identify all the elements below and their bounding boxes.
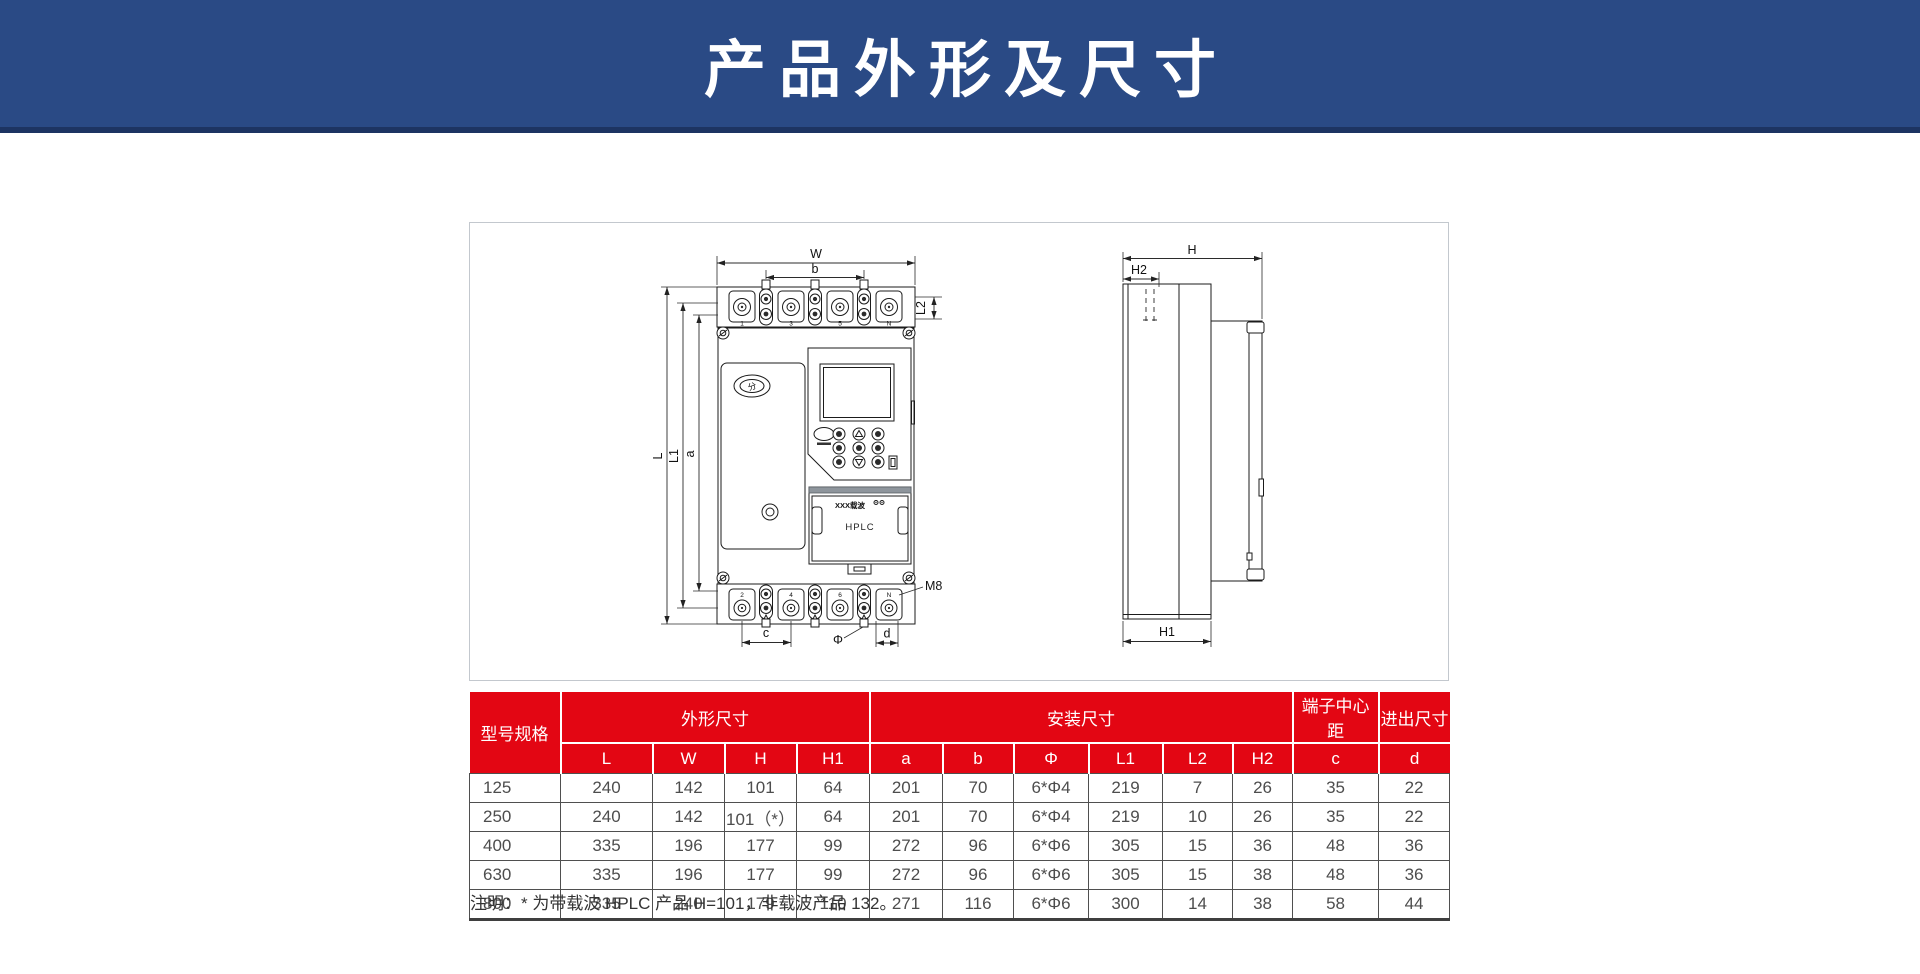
col-header: b bbox=[943, 743, 1014, 774]
value-cell: 70 bbox=[943, 774, 1014, 803]
dim-label-h: H bbox=[1187, 243, 1196, 257]
value-cell: 14 bbox=[1163, 890, 1233, 920]
col-header: L2 bbox=[1163, 743, 1233, 774]
dim-label-h2: H2 bbox=[1131, 263, 1147, 277]
header-model: 型号规格 bbox=[470, 692, 561, 774]
page-title: 产品外形及尺寸 bbox=[0, 0, 1920, 127]
dim-label-a: a bbox=[683, 450, 697, 457]
page-header: 产品外形及尺寸 bbox=[0, 0, 1920, 133]
value-cell: 35 bbox=[1293, 774, 1379, 803]
value-cell: 201 bbox=[870, 774, 943, 803]
col-header: L bbox=[561, 743, 653, 774]
terminal-label: 5 bbox=[838, 321, 842, 328]
keypad-buttons bbox=[833, 428, 884, 468]
dim-label-b: b bbox=[812, 262, 819, 276]
value-cell: 142 bbox=[653, 803, 725, 832]
value-cell: 26 bbox=[1233, 803, 1293, 832]
value-cell: 58 bbox=[1293, 890, 1379, 920]
header-outline-dims: 外形尺寸 bbox=[561, 692, 870, 743]
value-cell: 240 bbox=[561, 803, 653, 832]
value-cell: 70 bbox=[943, 803, 1014, 832]
value-cell: 6*Φ6 bbox=[1014, 861, 1089, 890]
dim-label-phi: Φ bbox=[833, 633, 843, 647]
header-terminal-pitch: 端子中心距 bbox=[1293, 692, 1379, 743]
value-cell: 38 bbox=[1233, 861, 1293, 890]
dimension-drawing: 1 3 5 N 分 bbox=[470, 223, 1448, 680]
dim-d: d bbox=[876, 621, 898, 647]
model-cell: 250 bbox=[470, 803, 561, 832]
col-header: Φ bbox=[1014, 743, 1089, 774]
display-panel bbox=[808, 348, 911, 480]
dim-label-d: d bbox=[884, 627, 891, 641]
value-cell: 305 bbox=[1089, 832, 1163, 861]
hplc-module: XXX载波 HPLC bbox=[809, 487, 911, 574]
dim-b: b bbox=[766, 262, 864, 279]
value-cell: 240 bbox=[561, 774, 653, 803]
spec-table: 型号规格 外形尺寸 安装尺寸 端子中心距 进出尺寸 L W H H1 a b Φ… bbox=[469, 692, 1450, 921]
model-cell: 400 bbox=[470, 832, 561, 861]
keyhole bbox=[762, 504, 778, 520]
col-header: H1 bbox=[797, 743, 870, 774]
value-cell: 196 bbox=[653, 861, 725, 890]
front-cover-profile bbox=[1249, 321, 1262, 581]
dim-l2: L2 bbox=[914, 297, 942, 319]
value-cell: 305 bbox=[1089, 861, 1163, 890]
module-brand-label: XXX载波 bbox=[835, 500, 866, 510]
value-cell: 36 bbox=[1379, 861, 1450, 890]
value-cell: 38 bbox=[1233, 890, 1293, 920]
value-cell: 300 bbox=[1089, 890, 1163, 920]
value-cell: 335 bbox=[561, 861, 653, 890]
dim-label-c: c bbox=[763, 626, 769, 640]
power-off-display-button bbox=[814, 428, 834, 441]
col-header: L1 bbox=[1089, 743, 1163, 774]
model-cell: 630 bbox=[470, 861, 561, 890]
table-row: 63033519617799272966*Φ630515384836 bbox=[470, 861, 1450, 890]
value-cell: 142 bbox=[653, 774, 725, 803]
dim-label-l2: L2 bbox=[914, 301, 928, 315]
value-cell: 22 bbox=[1379, 803, 1450, 832]
front-door-panel: 分 bbox=[721, 363, 805, 549]
value-cell: 44 bbox=[1379, 890, 1450, 920]
dim-label-w: W bbox=[810, 247, 822, 261]
value-cell: 48 bbox=[1293, 832, 1379, 861]
table-row: 250240142101（*）64201706*Φ421910263522 bbox=[470, 803, 1450, 832]
header-mounting-dims: 安装尺寸 bbox=[870, 692, 1293, 743]
table-note: 注明：* 为带载波 HPLC 产品 H=101，非载波产品 132。 bbox=[470, 889, 897, 914]
dim-label-l: L bbox=[651, 452, 665, 459]
value-cell: 116 bbox=[943, 890, 1014, 920]
value-cell: 6*Φ6 bbox=[1014, 890, 1089, 920]
terminal-label: 2 bbox=[740, 592, 744, 599]
terminal-label: 1 bbox=[740, 321, 744, 328]
value-cell: 6*Φ4 bbox=[1014, 803, 1089, 832]
value-cell: 96 bbox=[943, 861, 1014, 890]
dim-phi: Φ bbox=[833, 627, 863, 647]
value-cell: 64 bbox=[797, 774, 870, 803]
value-cell: 335 bbox=[561, 832, 653, 861]
value-cell: 177 bbox=[725, 861, 797, 890]
side-view: H H2 H1 bbox=[1123, 243, 1264, 647]
value-cell: 99 bbox=[797, 861, 870, 890]
col-header: c bbox=[1293, 743, 1379, 774]
terminal-label: 3 bbox=[789, 321, 793, 328]
terminal-label: N bbox=[887, 592, 892, 599]
value-cell: 219 bbox=[1089, 774, 1163, 803]
col-header: W bbox=[653, 743, 725, 774]
dim-label-m8: M8 bbox=[925, 579, 942, 593]
value-cell: 272 bbox=[870, 861, 943, 890]
module-name-label: HPLC bbox=[845, 522, 874, 533]
table-row: 40033519617799272966*Φ630515364836 bbox=[470, 832, 1450, 861]
dim-label-h1: H1 bbox=[1159, 625, 1175, 639]
value-cell: 6*Φ6 bbox=[1014, 832, 1089, 861]
value-cell: 48 bbox=[1293, 861, 1379, 890]
dim-a: a bbox=[683, 315, 718, 591]
col-header: a bbox=[870, 743, 943, 774]
terminal-label: N bbox=[887, 321, 892, 328]
table-row: 12524014210164201706*Φ42197263522 bbox=[470, 774, 1450, 803]
value-cell: 36 bbox=[1233, 832, 1293, 861]
value-cell: 7 bbox=[1163, 774, 1233, 803]
terminal-label: 6 bbox=[838, 592, 842, 599]
terminal-label: 4 bbox=[789, 592, 793, 599]
value-cell: 64 bbox=[797, 803, 870, 832]
value-cell: 22 bbox=[1379, 774, 1450, 803]
dim-h2: H2 bbox=[1123, 263, 1159, 287]
col-header: H bbox=[725, 743, 797, 774]
value-cell: 36 bbox=[1379, 832, 1450, 861]
value-cell: 272 bbox=[870, 832, 943, 861]
value-cell: 201 bbox=[870, 803, 943, 832]
value-cell: 10 bbox=[1163, 803, 1233, 832]
value-cell: 15 bbox=[1163, 861, 1233, 890]
drawing-frame: 1 3 5 N 分 bbox=[469, 222, 1449, 681]
value-cell: 219 bbox=[1089, 803, 1163, 832]
model-cell: 125 bbox=[470, 774, 561, 803]
value-cell: 101（*） bbox=[725, 803, 797, 832]
lcd-display bbox=[820, 364, 894, 421]
front-view: 1 3 5 N 分 bbox=[651, 247, 942, 647]
value-cell: 96 bbox=[943, 832, 1014, 861]
dim-label-l1: L1 bbox=[667, 449, 681, 463]
header-inout: 进出尺寸 bbox=[1379, 692, 1450, 743]
col-header: d bbox=[1379, 743, 1450, 774]
value-cell: 196 bbox=[653, 832, 725, 861]
col-header: H2 bbox=[1233, 743, 1293, 774]
value-cell: 6*Φ4 bbox=[1014, 774, 1089, 803]
value-cell: 99 bbox=[797, 832, 870, 861]
value-cell: 15 bbox=[1163, 832, 1233, 861]
dim-h1: H1 bbox=[1123, 621, 1211, 647]
header-accent-strip bbox=[0, 127, 1920, 133]
value-cell: 177 bbox=[725, 832, 797, 861]
value-cell: 101 bbox=[725, 774, 797, 803]
value-cell: 26 bbox=[1233, 774, 1293, 803]
value-cell: 35 bbox=[1293, 803, 1379, 832]
